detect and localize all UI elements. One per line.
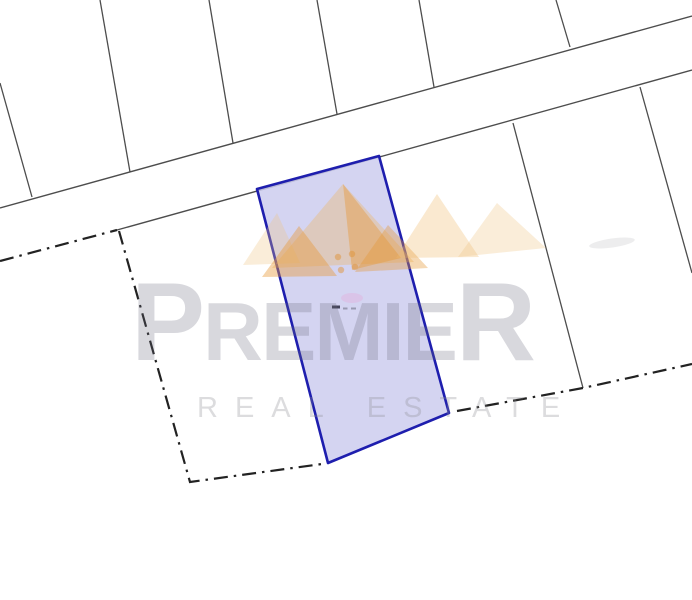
pink-smudge bbox=[341, 293, 363, 303]
parcel-label-mark bbox=[343, 308, 348, 310]
plot-boundary-line bbox=[100, 0, 130, 172]
logo-dot bbox=[338, 267, 344, 273]
cadastral-dashdot-west bbox=[0, 230, 117, 261]
parcel-label-mark bbox=[332, 306, 340, 309]
plot-boundary-line bbox=[0, 83, 32, 197]
map-vector-layer bbox=[0, 0, 692, 600]
logo-mountain-faint-right bbox=[458, 203, 546, 257]
logo-dot bbox=[335, 254, 341, 260]
cadastral-dashdot-southeast bbox=[457, 364, 692, 411]
plot-boundary-line bbox=[209, 0, 233, 143]
logo-dot bbox=[349, 251, 355, 257]
plot-boundary-line bbox=[640, 87, 692, 273]
cadastral-map-image: P REMIE R REAL ESTATE bbox=[0, 0, 692, 600]
plot-boundary-line bbox=[419, 0, 434, 87]
plot-boundary-line bbox=[513, 123, 583, 388]
plot-boundary-line bbox=[556, 0, 570, 47]
parcel-label-mark bbox=[351, 308, 356, 310]
logo-dot bbox=[352, 264, 358, 270]
faint-streak bbox=[589, 235, 636, 250]
plot-boundary-line bbox=[317, 0, 337, 114]
road-bottom-edge bbox=[117, 70, 692, 230]
